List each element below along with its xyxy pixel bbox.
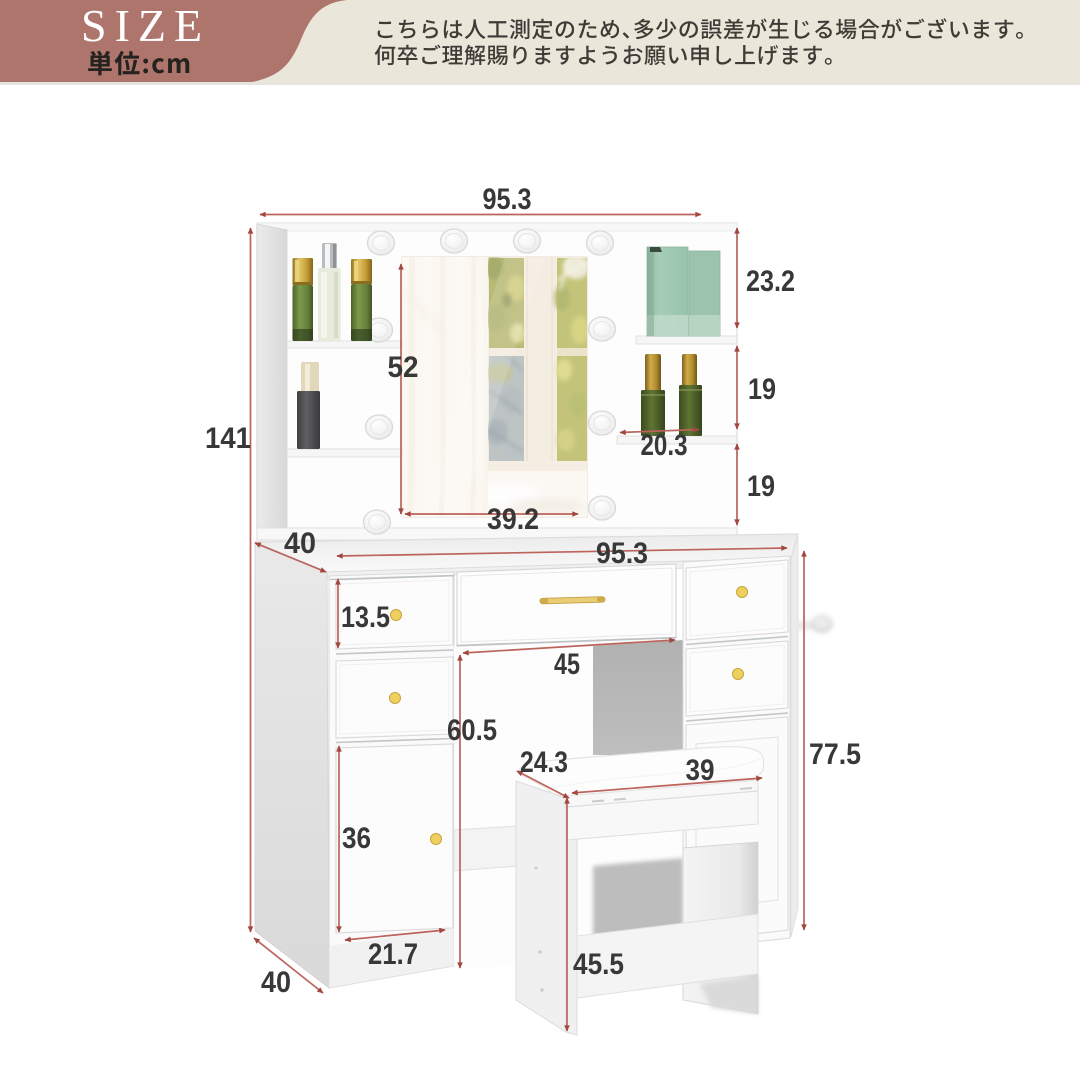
svg-text:141: 141 [205, 422, 251, 455]
svg-text:95.3: 95.3 [596, 537, 648, 570]
svg-text:77.5: 77.5 [809, 738, 861, 771]
svg-text:19: 19 [747, 470, 775, 503]
svg-text:13.5: 13.5 [341, 601, 390, 634]
svg-text:52: 52 [388, 351, 419, 384]
svg-text:45: 45 [554, 648, 580, 681]
svg-text:24.3: 24.3 [520, 746, 568, 779]
svg-text:20.3: 20.3 [641, 429, 688, 462]
svg-text:60.5: 60.5 [447, 714, 497, 747]
svg-text:36: 36 [342, 822, 371, 855]
svg-text:40: 40 [284, 527, 316, 560]
svg-text:39: 39 [686, 754, 715, 787]
svg-text:21.7: 21.7 [368, 938, 418, 971]
svg-text:SIZE: SIZE [81, 0, 210, 51]
svg-text:39.2: 39.2 [487, 503, 539, 536]
svg-text:19: 19 [748, 373, 776, 406]
svg-text:23.2: 23.2 [746, 265, 795, 298]
svg-text:95.3: 95.3 [483, 183, 532, 216]
svg-text:45.5: 45.5 [573, 948, 624, 981]
svg-text:40: 40 [261, 966, 291, 999]
